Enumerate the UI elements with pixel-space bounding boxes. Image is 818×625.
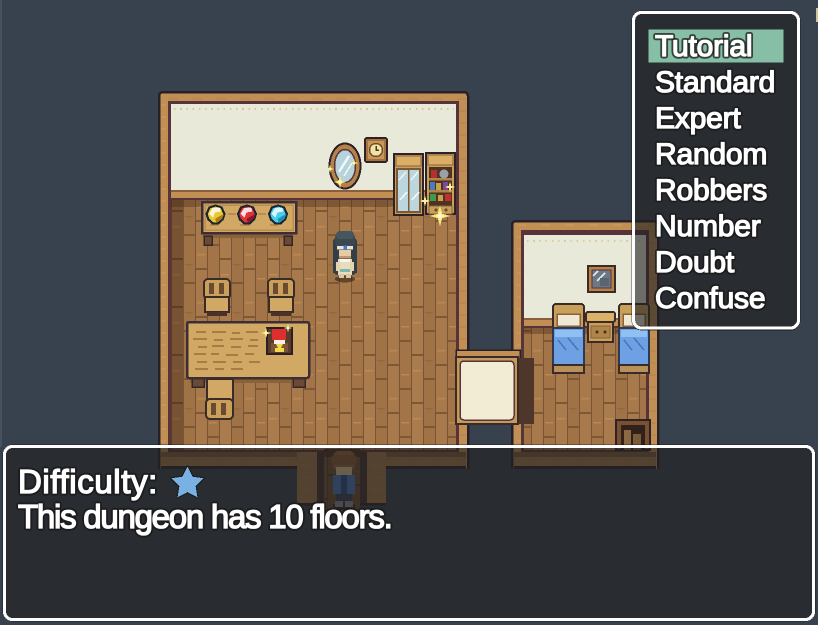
- svg-text:Doubt: Doubt: [655, 246, 735, 279]
- svg-text:Number: Number: [655, 210, 761, 243]
- svg-text:This dungeon has 10 floors.: This dungeon has 10 floors.: [18, 498, 392, 535]
- svg-text:Random: Random: [655, 138, 767, 171]
- svg-text:Tutorial: Tutorial: [655, 30, 752, 63]
- svg-text:Difficulty:: Difficulty:: [18, 463, 158, 500]
- svg-text:Standard: Standard: [655, 66, 775, 99]
- svg-text:Expert: Expert: [655, 102, 741, 135]
- svg-text:Robbers: Robbers: [655, 174, 767, 207]
- svg-text:Confuse: Confuse: [655, 282, 765, 315]
